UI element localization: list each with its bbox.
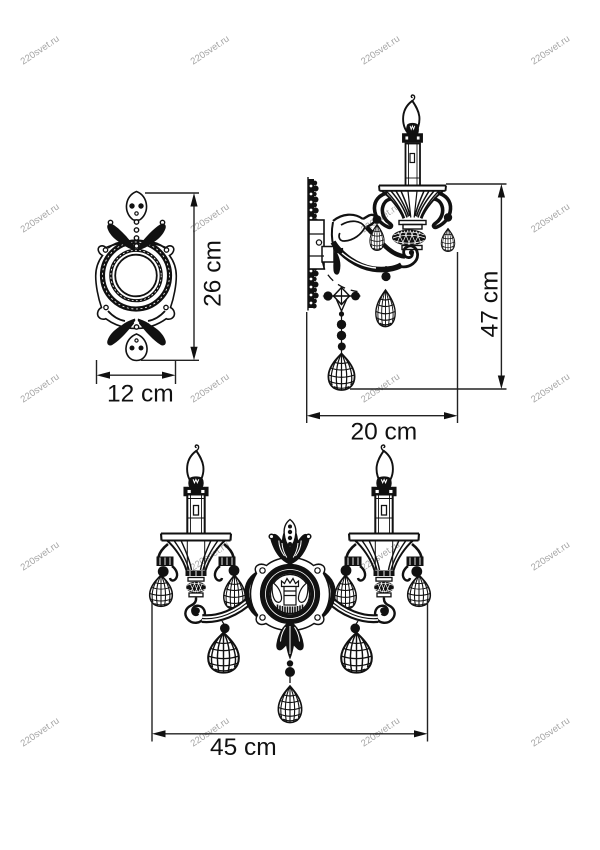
svg-text:220svet.ru: 220svet.ru <box>189 33 232 67</box>
svg-text:47 cm: 47 cm <box>477 271 504 338</box>
svg-text:220svet.ru: 220svet.ru <box>529 371 572 405</box>
svg-text:220svet.ru: 220svet.ru <box>19 715 62 749</box>
svg-text:20 cm: 20 cm <box>351 419 418 446</box>
svg-text:12 cm: 12 cm <box>107 381 174 408</box>
svg-text:220svet.ru: 220svet.ru <box>529 715 572 749</box>
svg-text:220svet.ru: 220svet.ru <box>19 201 62 235</box>
svg-text:220svet.ru: 220svet.ru <box>359 715 402 749</box>
svg-text:220svet.ru: 220svet.ru <box>19 371 62 405</box>
svg-text:26 cm: 26 cm <box>200 240 227 307</box>
svg-text:220svet.ru: 220svet.ru <box>529 201 572 235</box>
svg-text:220svet.ru: 220svet.ru <box>19 33 62 67</box>
svg-text:220svet.ru: 220svet.ru <box>189 201 232 235</box>
svg-text:220svet.ru: 220svet.ru <box>529 33 572 67</box>
svg-text:220svet.ru: 220svet.ru <box>359 33 402 67</box>
svg-text:220svet.ru: 220svet.ru <box>19 539 62 573</box>
svg-text:220svet.ru: 220svet.ru <box>529 539 572 573</box>
svg-text:45 cm: 45 cm <box>210 734 277 761</box>
svg-text:220svet.ru: 220svet.ru <box>189 371 232 405</box>
